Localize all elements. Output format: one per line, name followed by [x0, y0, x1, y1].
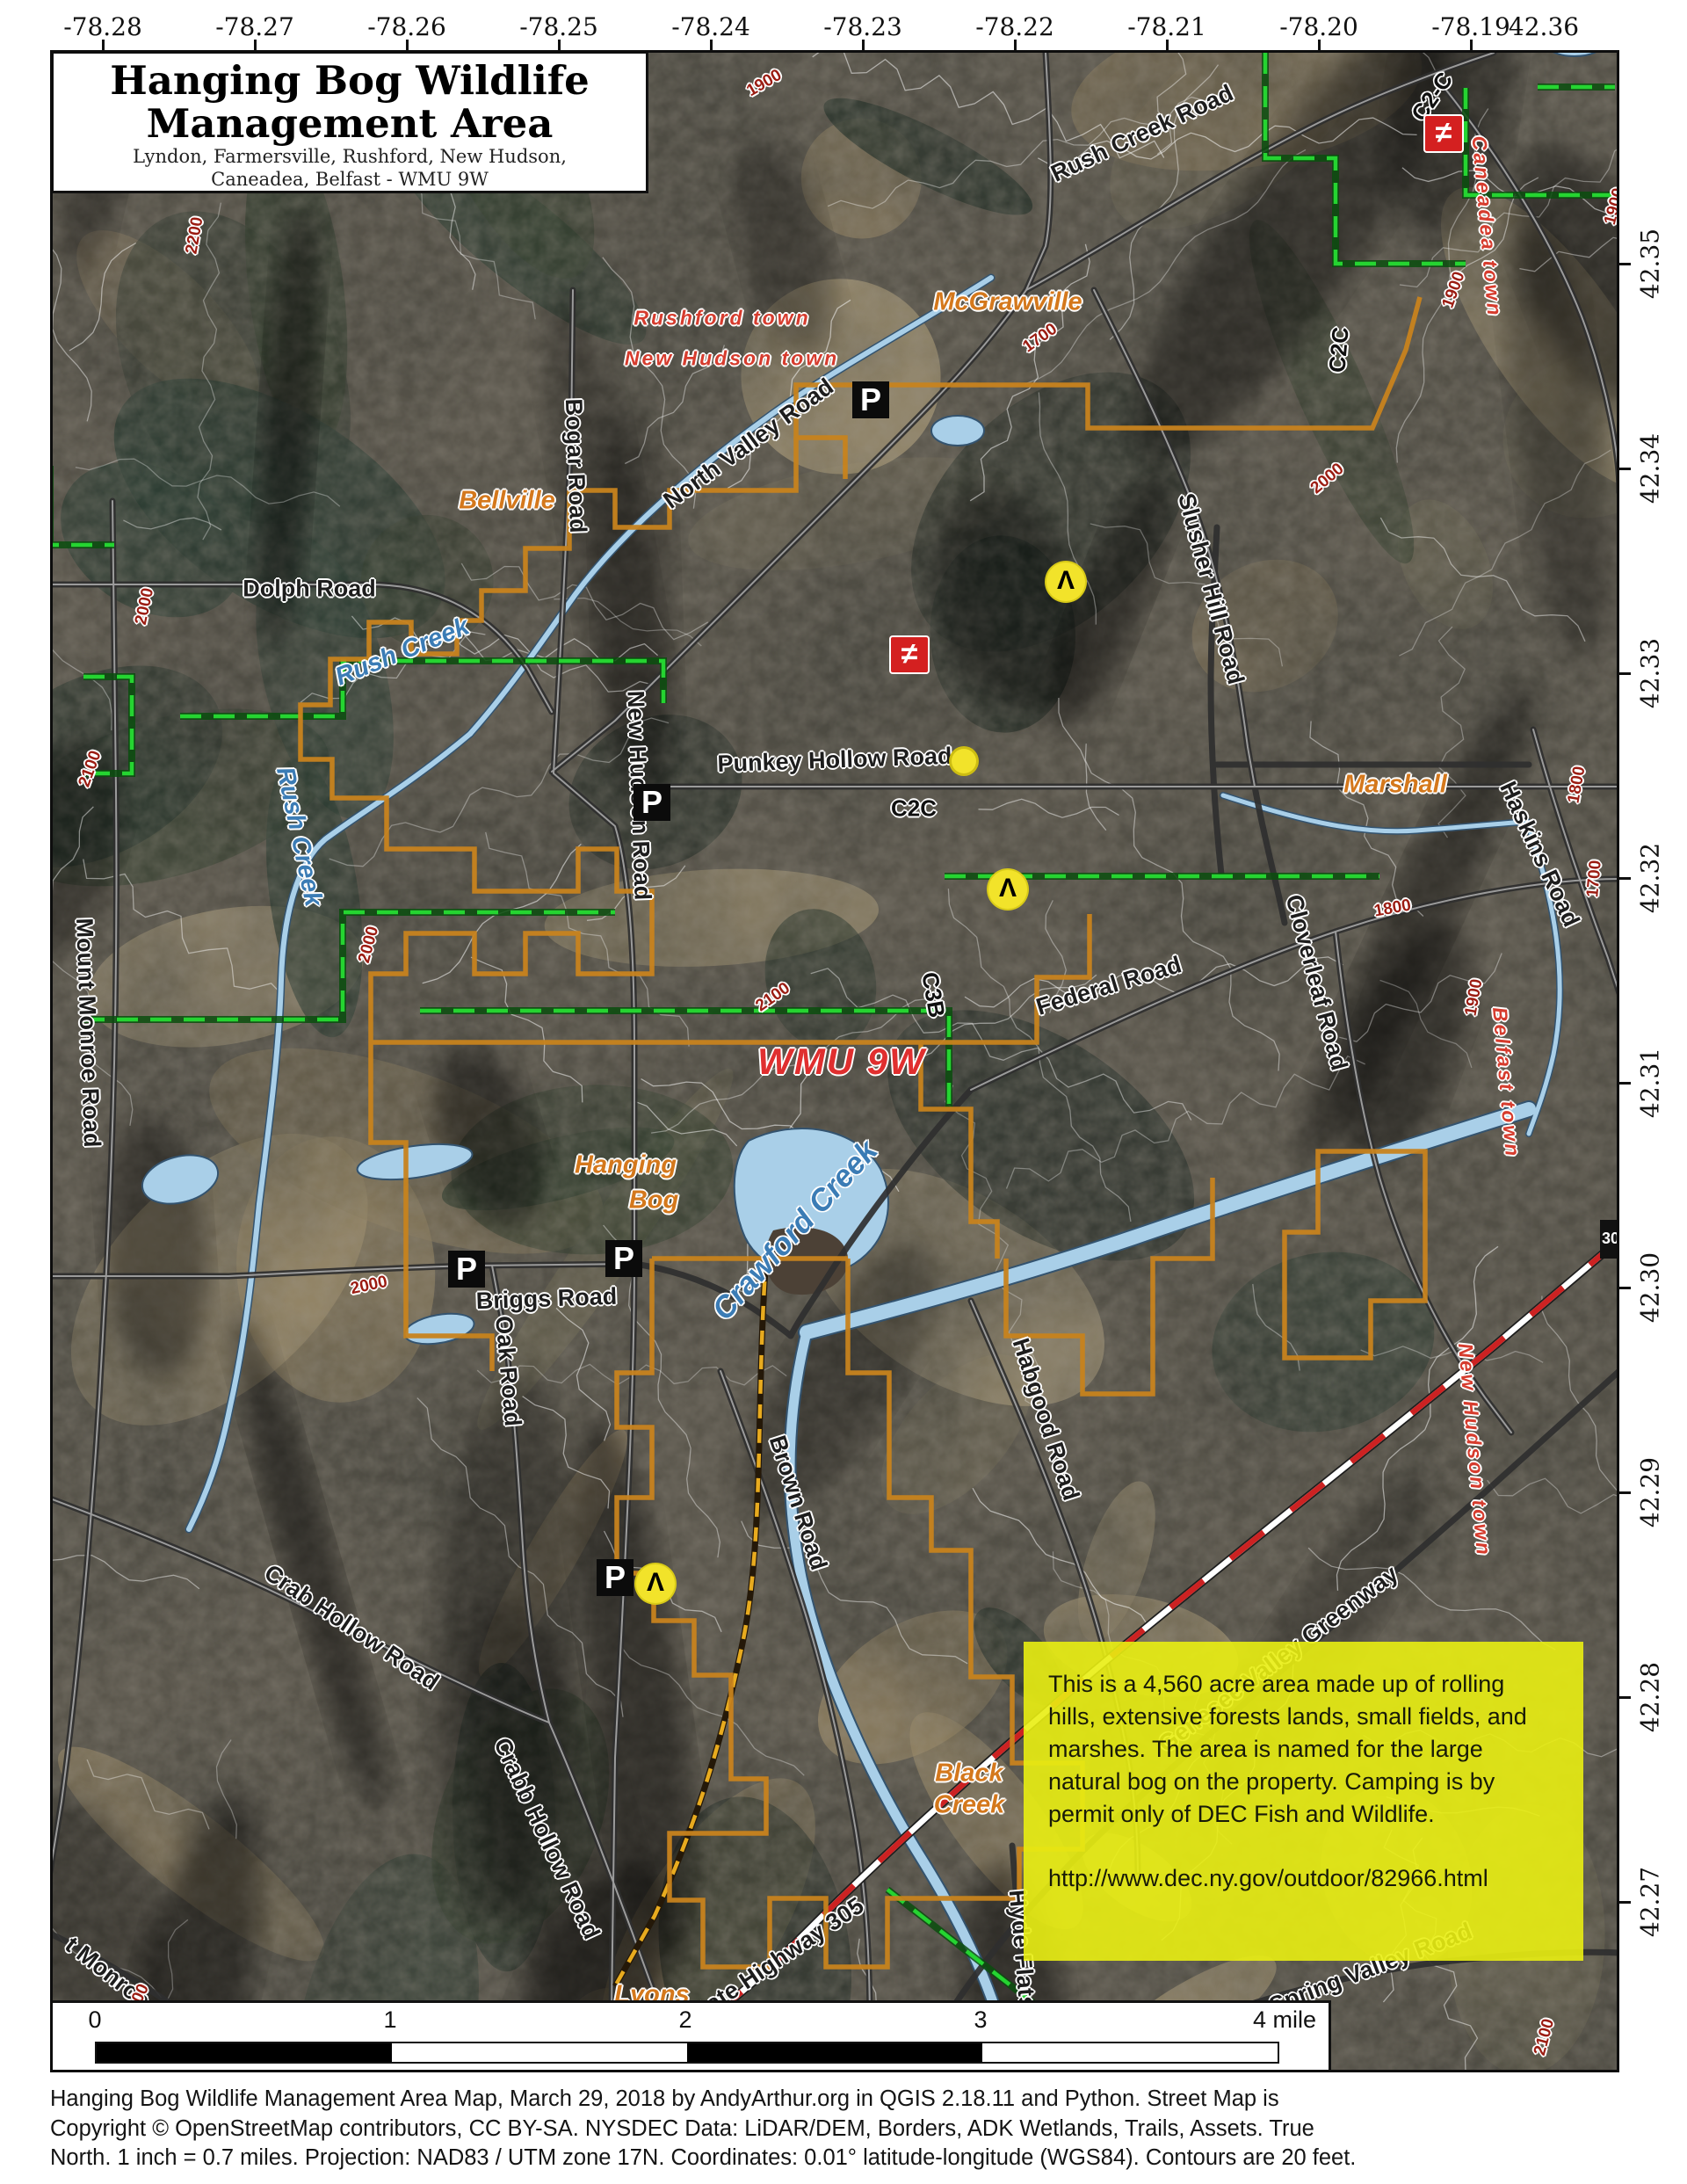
axis-tick: [1619, 1696, 1631, 1699]
axis-tick: [1014, 40, 1017, 51]
axis-tick: [1619, 1287, 1631, 1289]
caption-line: Hanging Bog Wildlife Management Area Map…: [50, 2085, 1645, 2115]
axis-tick: [1619, 1082, 1631, 1085]
axis-tick: [1166, 40, 1169, 51]
axis-tick: [254, 40, 257, 51]
axis-label-longitude: -78.21: [1127, 12, 1206, 41]
axis-tick: [102, 40, 105, 51]
axis-label-longitude: -78.27: [215, 12, 294, 41]
axis-tick: [710, 40, 713, 51]
parking-icon: P: [634, 784, 670, 821]
scale-bar-number: 1: [383, 2006, 396, 2034]
axis-tick: [1619, 672, 1631, 675]
axis-label-longitude: -78.23: [823, 12, 902, 41]
info-box-text: This is a 4,560 acre area made up of rol…: [1048, 1668, 1559, 1831]
parking-icon: P: [448, 1251, 485, 1288]
axis-label-longitude: -78.22: [975, 12, 1054, 41]
railroad-crossing-icon: ≠: [1423, 114, 1464, 153]
campsite-icon: Λ: [636, 1564, 675, 1603]
parking-icon: P: [605, 1240, 642, 1277]
map-title-line2: Management Area: [54, 103, 646, 145]
axis-label-latitude: 42.32: [1636, 843, 1665, 913]
axis-tick: [862, 40, 865, 51]
axis-label-latitude: 42.34: [1636, 433, 1665, 504]
axis-tick: [1619, 877, 1631, 880]
axis-tick: [1619, 1491, 1631, 1494]
axis-label-longitude: -78.20: [1279, 12, 1358, 41]
title-box: Hanging Bog Wildlife Management Area Lyn…: [51, 51, 648, 193]
info-box-line: hills, extensive forests lands, small fi…: [1048, 1701, 1559, 1733]
axis-label-longitude: -78.25: [519, 12, 598, 41]
axis-label-latitude: 42.30: [1636, 1252, 1665, 1323]
map-subtitle-line2: Caneadea, Belfast - WMU 9W: [54, 168, 646, 191]
axis-label-latitude: 42.31: [1636, 1048, 1665, 1118]
info-box-url[interactable]: http://www.dec.ny.gov/outdoor/82966.html: [1048, 1862, 1559, 1895]
info-box-line: This is a 4,560 acre area made up of rol…: [1048, 1668, 1559, 1701]
axis-label-longitude: -78.24: [671, 12, 750, 41]
railroad-crossing-icon: ≠: [889, 635, 930, 674]
axis-tick: [1619, 468, 1631, 470]
axis-tick: [558, 40, 561, 51]
campsite-icon: Λ: [1046, 562, 1085, 601]
campsite-icon: Λ: [988, 870, 1027, 909]
axis-tick: [1619, 263, 1631, 265]
route-shield-icon: 305: [1600, 1220, 1619, 1259]
scale-bar-number: 0: [88, 2006, 101, 2034]
axis-tick: [1470, 40, 1473, 51]
asset-point-icon: [952, 749, 976, 773]
axis-tick: [1318, 40, 1321, 51]
axis-label-longitude: -78.28: [63, 12, 142, 41]
axis-label-latitude: 42.29: [1636, 1457, 1665, 1527]
axis-label-latitude-corner: 42.36: [1509, 12, 1579, 41]
info-box-line: natural bog on the property. Camping is …: [1048, 1766, 1559, 1798]
axis-label-longitude: -78.19: [1431, 12, 1510, 41]
scale-bar: 4 mile 0123: [50, 2000, 1331, 2072]
axis-label-latitude: 42.28: [1636, 1662, 1665, 1732]
caption-line: Copyright © OpenStreetMap contributors, …: [50, 2115, 1645, 2144]
axis-label-latitude: 42.33: [1636, 638, 1665, 708]
axis-tick: [1619, 1901, 1631, 1904]
parking-icon: P: [852, 381, 889, 418]
scale-bar-number: 3: [974, 2006, 987, 2034]
axis-label-latitude: 42.35: [1636, 229, 1665, 299]
map-title-line1: Hanging Bog Wildlife: [54, 59, 646, 103]
axis-tick: [406, 40, 409, 51]
info-box-line: marshes. The area is named for the large: [1048, 1733, 1559, 1766]
caption: Hanging Bog Wildlife Management Area Map…: [50, 2085, 1645, 2173]
map-subtitle-line1: Lyndon, Farmersville, Rushford, New Huds…: [54, 145, 646, 168]
info-box-line: permit only of DEC Fish and Wildlife.: [1048, 1798, 1559, 1831]
scale-bar-bar: [95, 2042, 1279, 2064]
parking-icon: P: [597, 1559, 634, 1596]
info-box: This is a 4,560 acre area made up of rol…: [1024, 1642, 1583, 1961]
caption-line: North. 1 inch = 0.7 miles. Projection: N…: [50, 2144, 1645, 2173]
scale-bar-end-label: 4 mile: [1253, 2006, 1316, 2034]
axis-label-longitude: -78.26: [367, 12, 446, 41]
scale-bar-number: 2: [678, 2006, 691, 2034]
axis-label-latitude: 42.27: [1636, 1867, 1665, 1937]
